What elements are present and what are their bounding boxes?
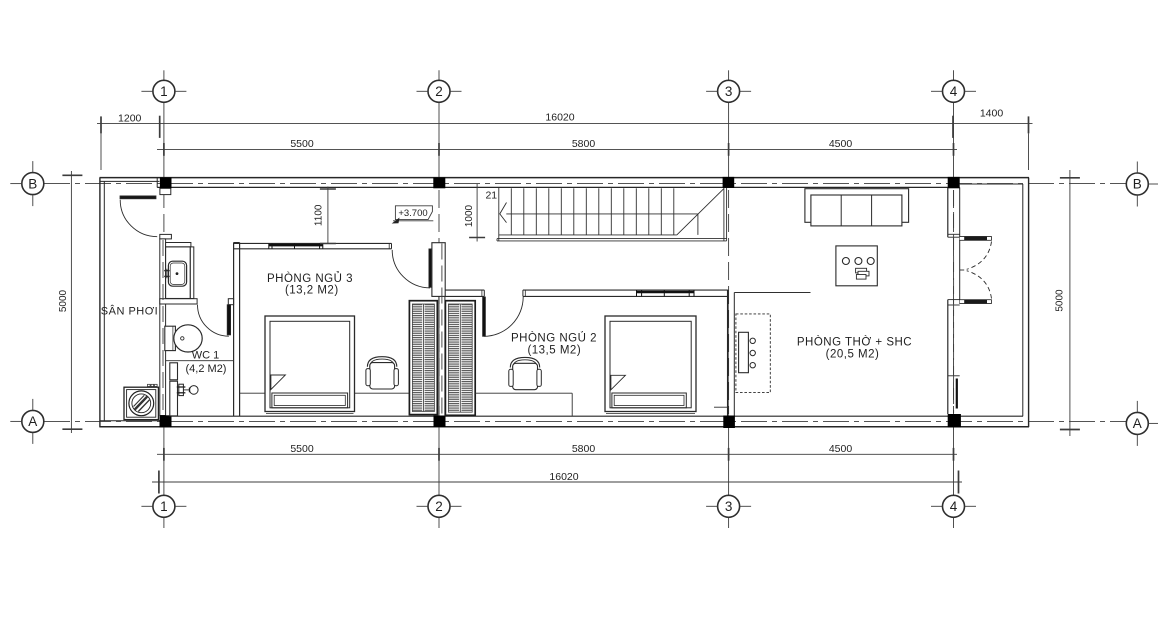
svg-text:1200: 1200 — [118, 112, 142, 124]
svg-text:WC 1: WC 1 — [192, 350, 220, 362]
svg-text:5500: 5500 — [290, 443, 314, 455]
svg-text:A: A — [1133, 416, 1142, 431]
svg-text:3: 3 — [725, 84, 733, 99]
svg-text:1000: 1000 — [464, 204, 475, 227]
svg-text:1400: 1400 — [980, 107, 1004, 119]
svg-text:5000: 5000 — [1055, 289, 1066, 312]
svg-text:1: 1 — [160, 84, 168, 99]
svg-text:5000: 5000 — [58, 289, 69, 312]
svg-text:21: 21 — [485, 189, 497, 201]
svg-text:4: 4 — [950, 499, 958, 514]
svg-text:(13,2 M2): (13,2 M2) — [285, 285, 339, 297]
svg-text:3: 3 — [725, 499, 733, 514]
svg-text:+3.700: +3.700 — [398, 208, 427, 219]
svg-text:4500: 4500 — [829, 443, 853, 455]
svg-text:5800: 5800 — [572, 138, 596, 150]
svg-text:PHÒNG THỜ + SHC: PHÒNG THỜ + SHC — [797, 335, 912, 348]
svg-text:1100: 1100 — [314, 204, 325, 226]
svg-text:16020: 16020 — [545, 111, 574, 123]
svg-text:5500: 5500 — [290, 138, 314, 150]
svg-text:A: A — [28, 414, 37, 429]
svg-text:PHÒNG NGỦ 3: PHÒNG NGỦ 3 — [267, 272, 353, 285]
svg-text:(4,2 M2): (4,2 M2) — [186, 363, 227, 375]
svg-text:B: B — [1133, 177, 1142, 192]
svg-text:B: B — [28, 176, 37, 191]
svg-text:1: 1 — [160, 499, 168, 514]
svg-text:SÂN PHƠI: SÂN PHƠI — [101, 305, 158, 318]
svg-text:2: 2 — [435, 84, 443, 99]
svg-text:PHÒNG NGỦ 2: PHÒNG NGỦ 2 — [511, 332, 597, 345]
svg-text:(13,5 M2): (13,5 M2) — [527, 345, 581, 357]
svg-text:(20,5 M2): (20,5 M2) — [826, 348, 880, 360]
svg-text:4500: 4500 — [829, 138, 853, 150]
svg-text:16020: 16020 — [549, 471, 578, 483]
svg-text:5800: 5800 — [572, 443, 596, 455]
svg-text:2: 2 — [435, 499, 443, 514]
svg-text:4: 4 — [950, 84, 958, 99]
